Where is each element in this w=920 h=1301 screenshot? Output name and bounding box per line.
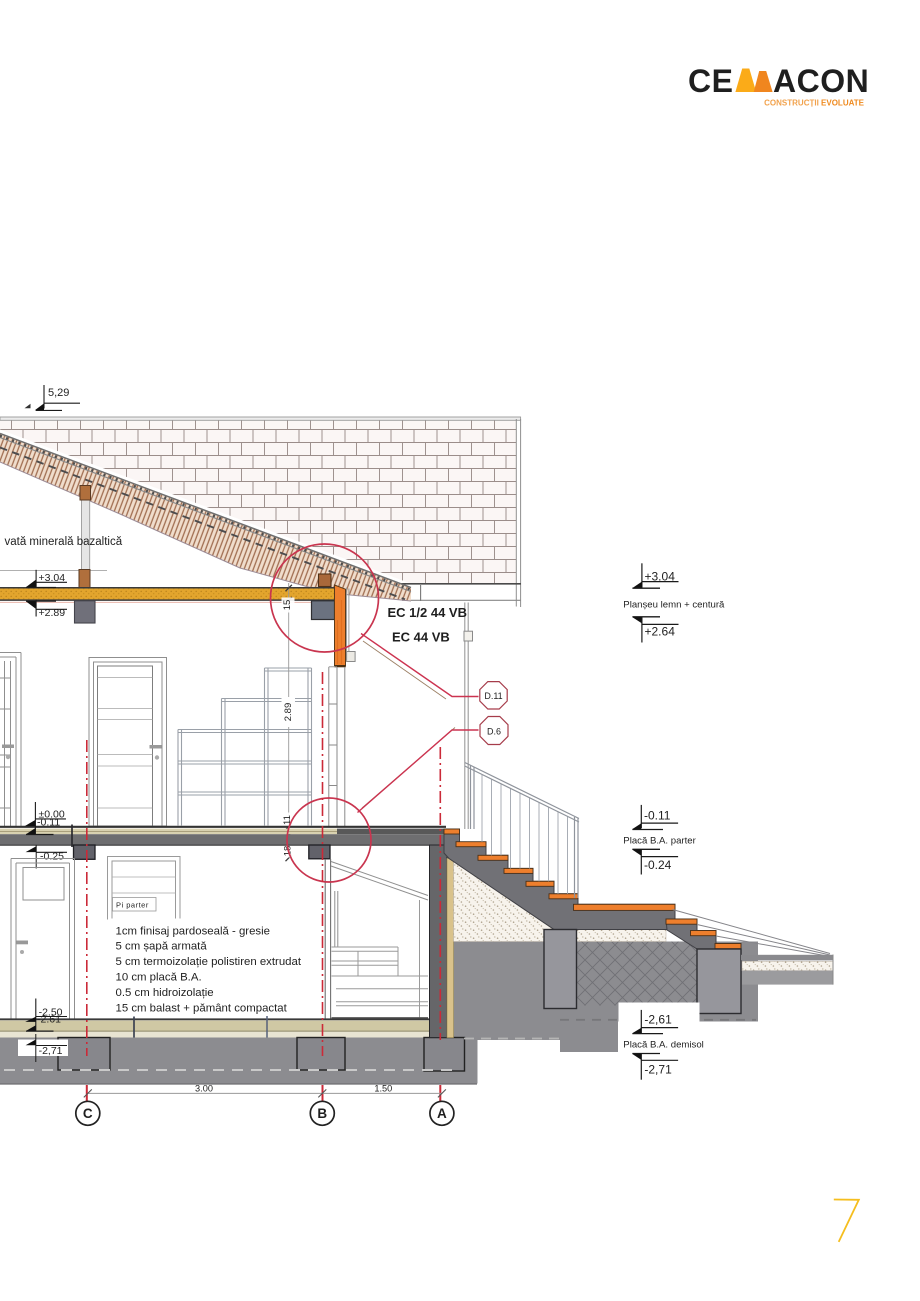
svg-text:Placă B.A. parter: Placă B.A. parter	[623, 835, 696, 846]
svg-text:-2,61: -2,61	[644, 1012, 672, 1026]
svg-text:-2,71: -2,71	[644, 1063, 672, 1077]
svg-text:-0.25: -0.25	[40, 851, 64, 863]
svg-text:CE: CE	[688, 63, 733, 99]
svg-text:vată minerală bazaltică: vată minerală bazaltică	[5, 536, 123, 548]
svg-text:-0.11: -0.11	[644, 809, 671, 823]
svg-text:1cm finisaj pardoseală - gresi: 1cm finisaj pardoseală - gresie	[116, 925, 270, 937]
svg-text:3.00: 3.00	[195, 1083, 213, 1093]
svg-text:CONSTRUCȚII EVOLUATE: CONSTRUCȚII EVOLUATE	[764, 99, 865, 108]
svg-text:ACON: ACON	[773, 63, 869, 99]
svg-text:EC 44 VB: EC 44 VB	[392, 630, 450, 645]
svg-text:EC 1/2 44 VB: EC 1/2 44 VB	[388, 605, 468, 620]
svg-text:0.5 cm hidroizolație: 0.5 cm hidroizolație	[116, 987, 214, 999]
svg-text:-0.11: -0.11	[37, 817, 60, 829]
svg-text:2.89: 2.89	[283, 703, 294, 722]
svg-text:-2,71: -2,71	[39, 1045, 63, 1057]
svg-text:-0.24: -0.24	[644, 858, 672, 872]
svg-text:Planșeu lemn + centură: Planșeu lemn + centură	[623, 599, 725, 610]
svg-text:B: B	[317, 1106, 327, 1121]
svg-text:A: A	[437, 1106, 447, 1121]
svg-text:+2.64: +2.64	[645, 625, 676, 639]
svg-text:5 cm șapă armată: 5 cm șapă armată	[116, 941, 208, 953]
svg-text:Placă B.A. demisol: Placă B.A. demisol	[623, 1040, 704, 1051]
svg-text:1.50: 1.50	[374, 1083, 392, 1093]
svg-text:Pi parter: Pi parter	[116, 901, 149, 910]
svg-text:15 cm balast + pământ compacta: 15 cm balast + pământ compactat	[116, 1002, 288, 1014]
svg-text:C: C	[83, 1106, 93, 1121]
svg-text:5 cm termoizolație polistiren: 5 cm termoizolație polistiren extrudat	[116, 956, 302, 968]
svg-text:5,29: 5,29	[48, 387, 69, 399]
svg-text:+2.89: +2.89	[39, 607, 66, 619]
svg-text:D.11: D.11	[484, 691, 502, 701]
svg-text:D.6: D.6	[487, 726, 501, 736]
svg-text:-2.61: -2.61	[37, 1014, 61, 1026]
svg-text:10 cm placă B.A.: 10 cm placă B.A.	[116, 972, 202, 984]
svg-text:15: 15	[282, 600, 293, 611]
